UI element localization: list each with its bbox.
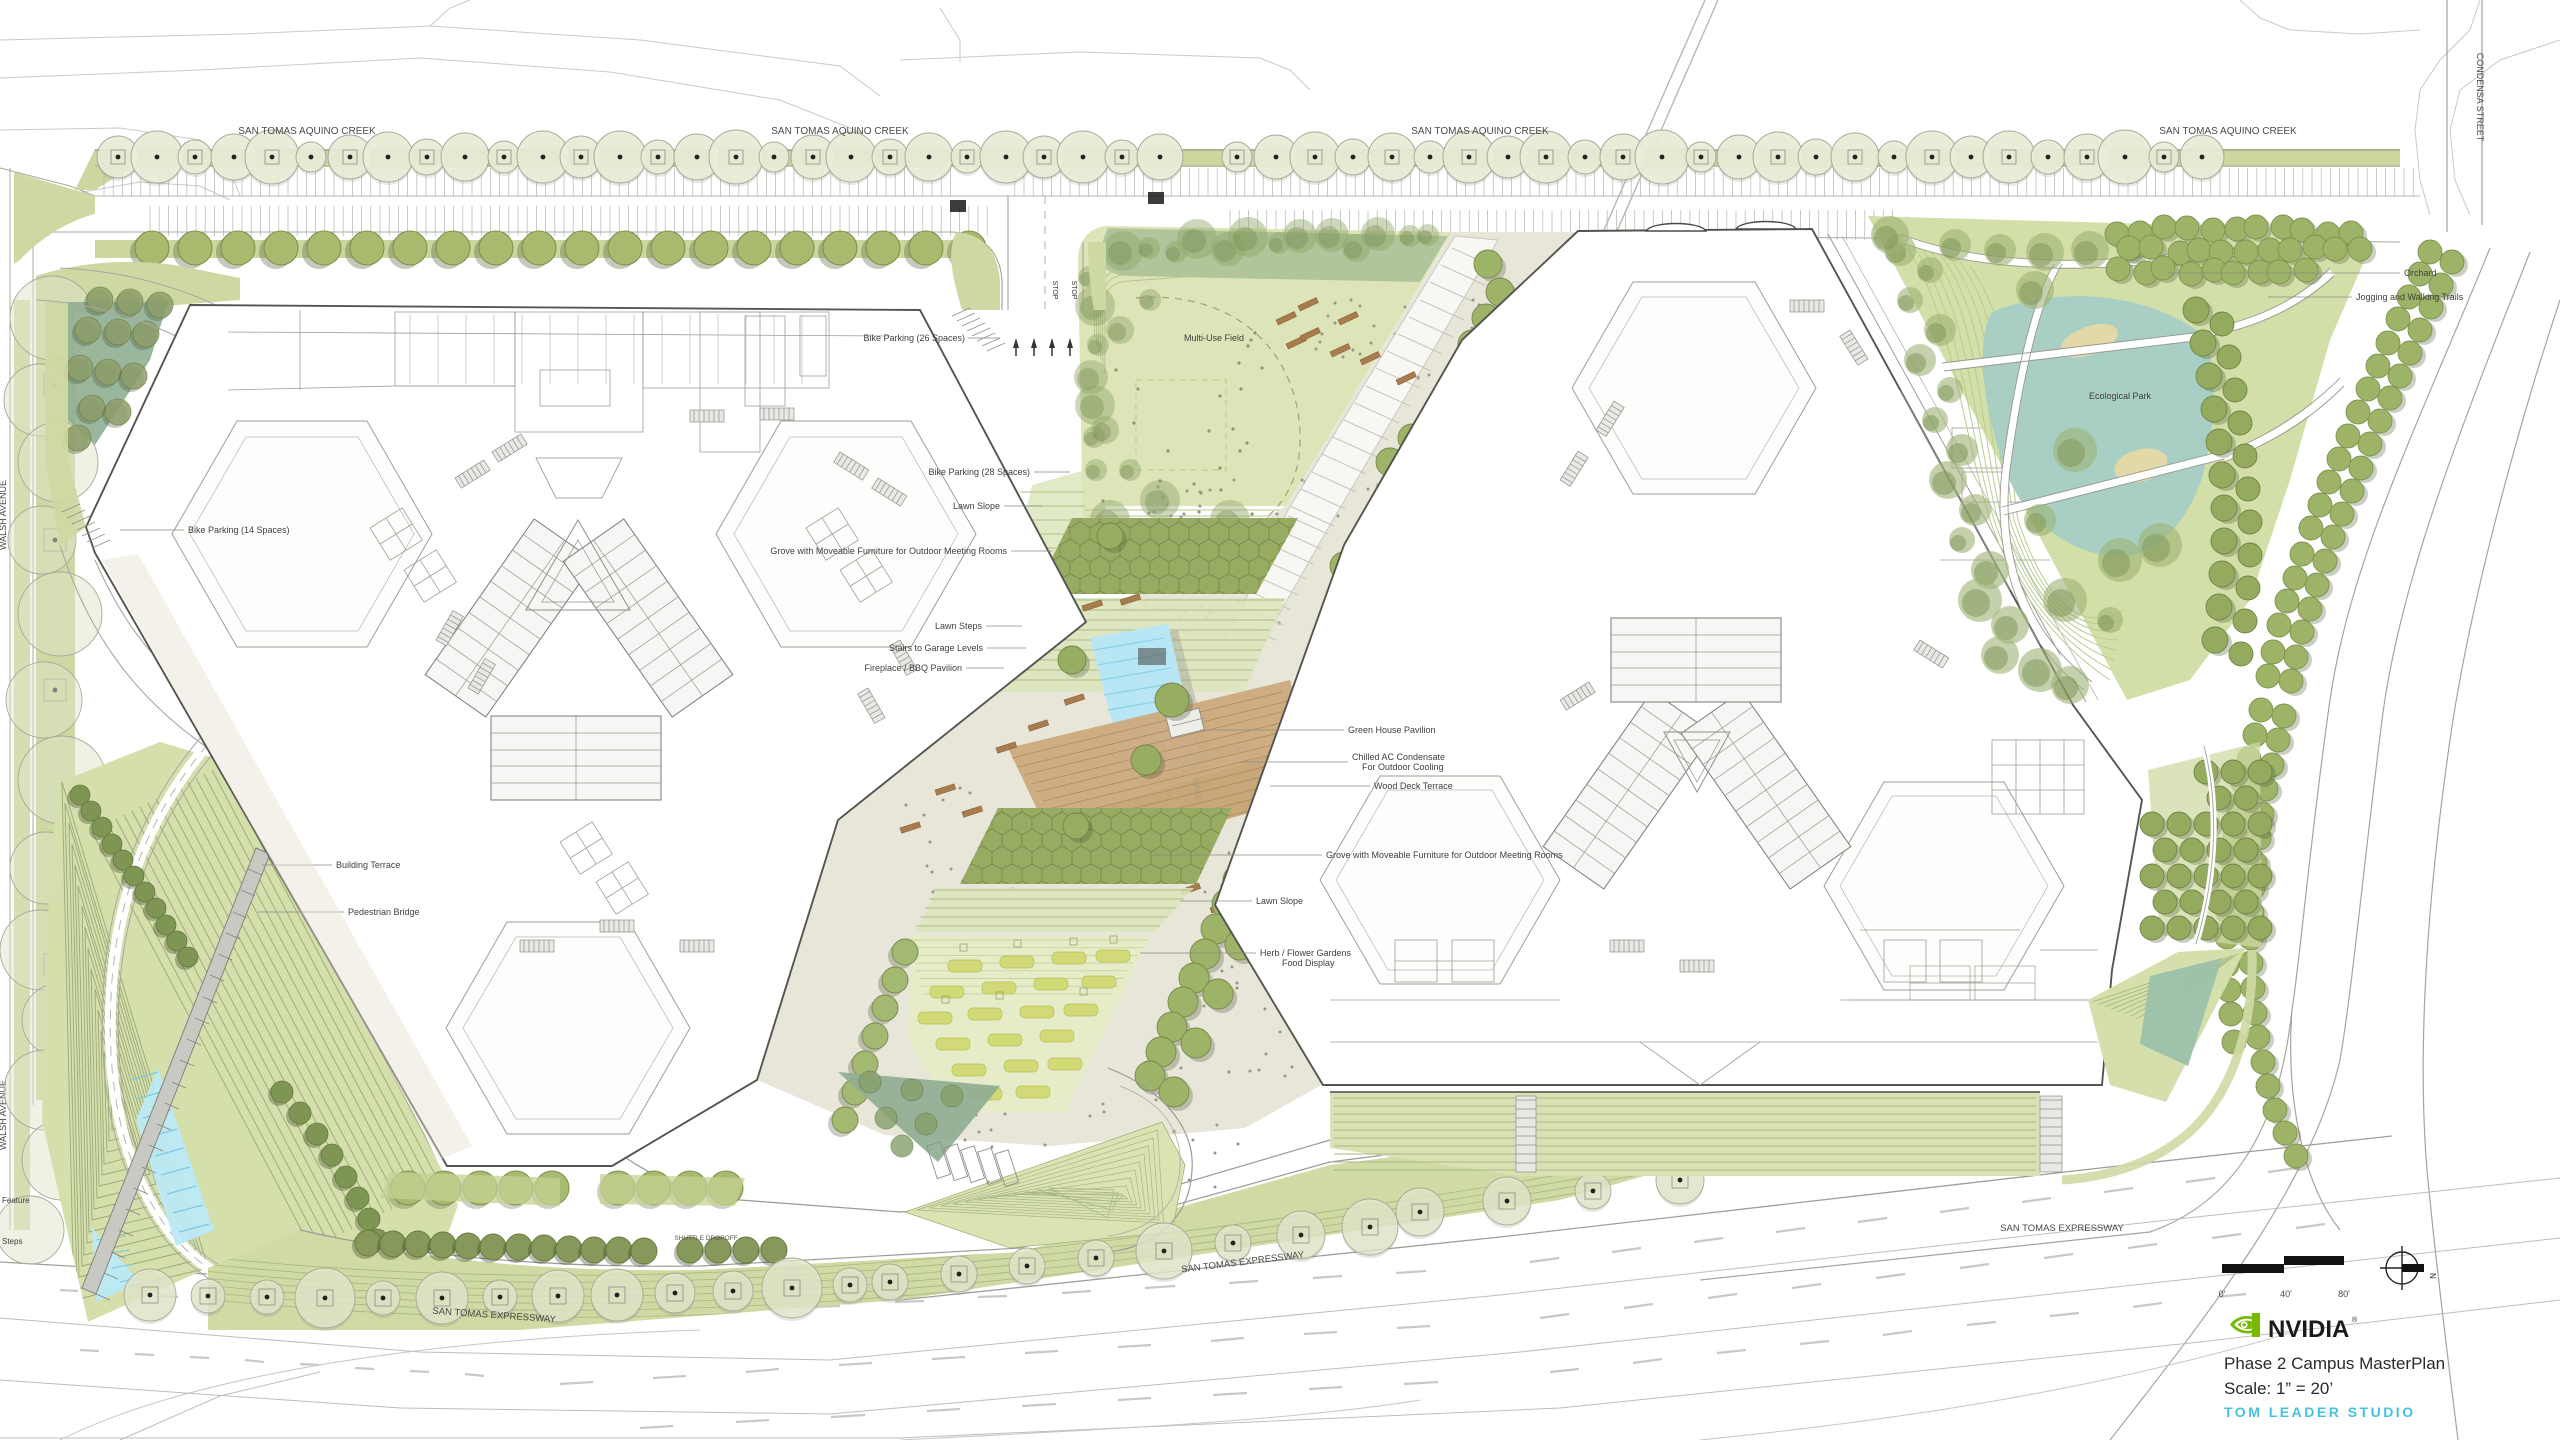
svg-text:Grove with Moveable Furniture: Grove with Moveable Furniture for Outdoo… <box>1326 850 1563 860</box>
svg-text:Chilled AC Condensate: Chilled AC Condensate <box>1352 752 1445 762</box>
svg-text:Fireplace / BBQ Pavilion: Fireplace / BBQ Pavilion <box>864 663 962 673</box>
svg-text:Stairs to Garage Levels: Stairs to Garage Levels <box>889 643 984 653</box>
svg-text:Jogging and Walking Trails: Jogging and Walking Trails <box>2356 292 2464 302</box>
svg-text:Ecological Park: Ecological Park <box>2089 391 2152 401</box>
svg-text:Feature: Feature <box>2 1196 30 1205</box>
svg-text:SAN TOMAS AQUINO CREEK: SAN TOMAS AQUINO CREEK <box>1411 126 1549 137</box>
svg-text:Steps: Steps <box>2 1237 22 1246</box>
svg-text:TOM LEADER STUDIO: TOM LEADER STUDIO <box>2224 1404 2416 1420</box>
svg-text:Green House Pavilion: Green House Pavilion <box>1348 725 1436 735</box>
svg-text:Food Display: Food Display <box>1282 958 1335 968</box>
svg-text:Grove with Moveable Furniture: Grove with Moveable Furniture for Outdoo… <box>770 546 1007 556</box>
svg-text:Wood Deck Terrace: Wood Deck Terrace <box>1374 781 1453 791</box>
svg-text:STOP: STOP <box>1070 281 1077 300</box>
svg-text:SAN TOMAS AQUINO CREEK: SAN TOMAS AQUINO CREEK <box>238 126 376 137</box>
svg-text:Orchard: Orchard <box>2404 268 2437 278</box>
svg-text:SAN TOMAS AQUINO CREEK: SAN TOMAS AQUINO CREEK <box>771 126 909 137</box>
svg-text:Multi-Use Field: Multi-Use Field <box>1184 333 1244 343</box>
svg-text:CONDENSA STREET: CONDENSA STREET <box>2475 53 2485 142</box>
svg-text:0': 0' <box>2219 1289 2226 1299</box>
svg-text:SHUTTLE DROPOFF: SHUTTLE DROPOFF <box>674 1235 737 1242</box>
svg-text:Bike Parking (14 Spaces): Bike Parking (14 Spaces) <box>188 525 290 535</box>
svg-text:Pedestrian Bridge: Pedestrian Bridge <box>348 907 420 917</box>
svg-text:Scale: 1” = 20’: Scale: 1” = 20’ <box>2224 1379 2333 1398</box>
svg-text:80': 80' <box>2338 1289 2350 1299</box>
svg-text:Lawn Steps: Lawn Steps <box>935 621 983 631</box>
svg-text:Phase 2 Campus MasterPlan: Phase 2 Campus MasterPlan <box>2224 1354 2445 1373</box>
svg-text:STOP: STOP <box>1051 281 1058 300</box>
svg-text:Bike Parking (28 Spaces): Bike Parking (28 Spaces) <box>928 467 1030 477</box>
svg-text:WALSH AVENUE: WALSH AVENUE <box>0 480 8 550</box>
svg-text:N: N <box>2428 1273 2437 1279</box>
svg-text:SAN TOMAS EXPRESSWAY: SAN TOMAS EXPRESSWAY <box>2000 1223 2124 1234</box>
svg-text:SAN TOMAS AQUINO CREEK: SAN TOMAS AQUINO CREEK <box>2159 126 2297 137</box>
svg-text:Lawn Slope: Lawn Slope <box>953 501 1000 511</box>
svg-text:40': 40' <box>2280 1289 2292 1299</box>
svg-text:Herb / Flower Gardens: Herb / Flower Gardens <box>1260 948 1352 958</box>
svg-text:Lawn Slope: Lawn Slope <box>1256 896 1303 906</box>
svg-text:Building Terrace: Building Terrace <box>336 860 400 870</box>
svg-text:NVIDIA: NVIDIA <box>2268 1316 2349 1343</box>
svg-text:Bike Parking (26 Spaces): Bike Parking (26 Spaces) <box>863 333 965 343</box>
svg-text:®: ® <box>2352 1316 2358 1324</box>
svg-text:For Outdoor Cooling: For Outdoor Cooling <box>1362 762 1444 772</box>
